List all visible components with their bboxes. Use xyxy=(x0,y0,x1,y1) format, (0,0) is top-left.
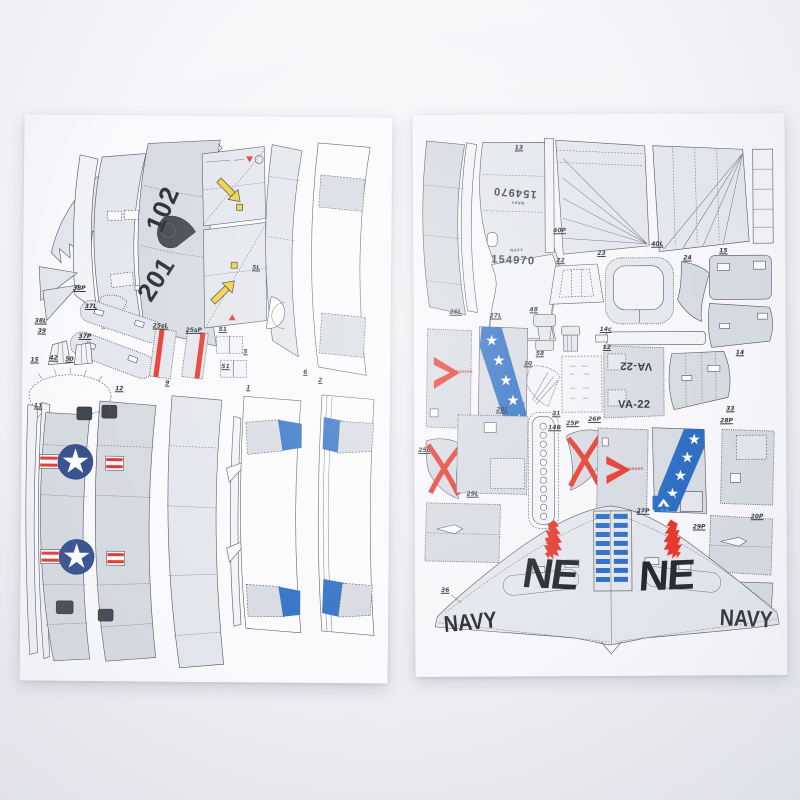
navy-marking: NAVY xyxy=(719,604,773,633)
part-label: 25L xyxy=(418,447,430,454)
part-label: 26P xyxy=(588,416,601,423)
part-label: 22 xyxy=(556,257,564,264)
part-label: 48 xyxy=(530,306,538,313)
part-label: 29L xyxy=(466,491,478,498)
squadron-marking: VA-22 xyxy=(618,399,650,411)
part-label: 38P xyxy=(73,285,86,292)
strip-part-1 xyxy=(239,396,303,633)
part-label: 14B xyxy=(548,424,561,431)
part-label: 37P xyxy=(79,333,92,340)
fuselage-panel-12 xyxy=(94,401,158,662)
part-label: 15 xyxy=(30,356,38,363)
buno-small-text: NAVY xyxy=(510,247,523,252)
fuselage-panel-11 xyxy=(39,407,92,661)
danger-marking: DANGER xyxy=(456,370,473,374)
part-label: 25sP xyxy=(186,327,202,334)
danger-marking: DANGER xyxy=(626,467,643,471)
canopy-frame-part xyxy=(605,258,673,324)
part-label: 31 xyxy=(552,410,560,417)
part-label: 25sL xyxy=(153,323,169,330)
part-label: 26L xyxy=(450,309,462,316)
left-parts-sheet: 102 201 38P 38L 39 37L 37P 15 42 50 25sL… xyxy=(20,114,393,683)
part-label: 27P xyxy=(637,508,650,515)
part-label: 30 xyxy=(524,360,532,367)
part-label: 33 xyxy=(726,405,734,412)
right-sheet-artwork xyxy=(413,113,788,677)
part-label: 58 xyxy=(536,350,544,357)
part-label: 37L xyxy=(85,303,97,310)
part-label: 5L xyxy=(252,264,260,271)
part-label: 12 xyxy=(603,344,611,351)
part-label: 42 xyxy=(49,355,57,362)
part-label: 40P xyxy=(553,227,566,234)
part-label: 39 xyxy=(38,328,46,335)
danger-chevron-panel xyxy=(426,329,473,429)
part-label: 14c xyxy=(600,326,612,333)
tail-code: NE xyxy=(637,550,694,600)
part-label: 28P xyxy=(720,417,733,424)
part-label: 5 xyxy=(243,348,247,355)
buno-small-text: NAVY xyxy=(511,200,525,206)
strip-part-2 xyxy=(317,395,376,635)
part-label: 2 xyxy=(318,377,322,384)
part-label: 23 xyxy=(597,250,605,257)
part-label: 9 xyxy=(165,380,169,387)
navy-marking: NAVY xyxy=(443,606,498,638)
part-label: 38L xyxy=(35,318,47,325)
part-label: 29P xyxy=(693,523,706,530)
tail-code: NE xyxy=(519,549,581,599)
blue-chevron-part xyxy=(653,496,675,510)
fin-panel-40L xyxy=(653,145,774,252)
fin-panel-40P xyxy=(545,138,650,255)
part-label: 20P xyxy=(751,513,764,520)
squadron-marking: VA-22 xyxy=(620,359,653,372)
part-label: 24 xyxy=(683,255,691,262)
small-parts xyxy=(534,314,580,351)
part-label: S1 xyxy=(219,326,228,333)
part-label: 36 xyxy=(441,587,449,594)
part-label: 12 xyxy=(115,385,123,392)
part-label: 14 xyxy=(736,349,744,356)
part-label: 15 xyxy=(719,247,727,254)
part-label: 50 xyxy=(65,356,73,363)
part-label: 13 xyxy=(515,144,523,151)
part-label: 27L xyxy=(490,313,502,320)
part-label: 25P xyxy=(566,420,579,427)
panel-box xyxy=(425,503,501,563)
part-label: 6 xyxy=(303,369,307,376)
right-parts-sheet: 154970 NAVY NAVY 154970 VA-22 VA-22 DANG… xyxy=(413,113,788,677)
part-label: 1 xyxy=(246,384,250,391)
part-label: 40L xyxy=(651,241,663,248)
buno-number: 154970 xyxy=(491,253,535,267)
arrow-panel xyxy=(201,146,269,329)
left-sheet-artwork xyxy=(20,114,393,683)
part-label: S1 xyxy=(221,363,230,370)
part-label: 28L xyxy=(496,406,508,413)
photo-background: 102 201 38P 38L 39 37L 37P 15 42 50 25sL… xyxy=(0,0,800,800)
part-label: 11 xyxy=(34,402,42,409)
